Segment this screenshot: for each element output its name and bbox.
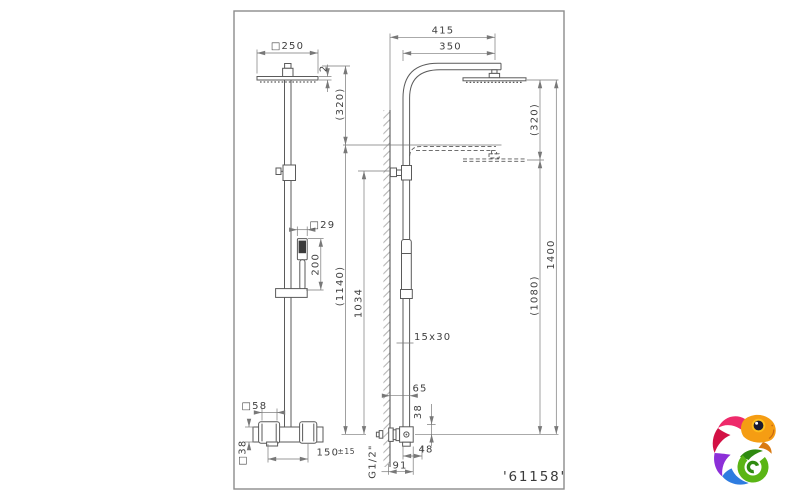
dim-handshower-width: □29	[310, 220, 336, 231]
page: □250 2 (320) □29 200 (1140) 1034	[0, 0, 800, 500]
dim-arm-reach-total: 415	[432, 26, 455, 37]
dim-head-height-adjust: (320)	[530, 103, 541, 136]
dim-overall-height: 1400	[546, 239, 557, 269]
dim-head-width: □250	[271, 41, 304, 52]
wall-hatch	[383, 110, 390, 467]
dim-riser-height-max: (1140)	[335, 266, 346, 306]
drawing-frame	[234, 11, 564, 489]
dim-total-depth: 91	[393, 461, 408, 472]
label-connection-thread: G1/2"	[368, 444, 379, 478]
dim-valve-body: □38	[238, 440, 249, 466]
logo-eye	[754, 421, 764, 431]
logo-tail-spiral-inner	[748, 462, 759, 473]
chameleon-logo	[713, 415, 776, 485]
dim-front-height-adjust: (320)	[335, 88, 346, 121]
logo-crest	[718, 416, 745, 429]
technical-drawing: □250 2 (320) □29 200 (1140) 1034	[0, 0, 800, 500]
logo-eye-highlight	[755, 422, 758, 425]
part-number: '61158'	[503, 469, 566, 485]
dim-outlet-drop: 38	[413, 404, 424, 419]
dim-handshower-length: 200	[310, 253, 321, 276]
logo-nostril	[771, 425, 773, 427]
label-riser-profile: 15x30	[414, 332, 451, 343]
logo-leg	[759, 442, 772, 454]
dim-riser-height: 1034	[354, 288, 365, 318]
dim-wall-clearance: 65	[413, 384, 428, 395]
dim-arm-reach: 350	[439, 42, 462, 53]
dim-valve-escutcheon: □58	[242, 401, 268, 412]
dim-handle-spacing-tolerance: ±15	[338, 447, 356, 456]
logo-body	[713, 428, 731, 453]
dim-handle-spacing: 150	[317, 448, 340, 459]
dim-handshower-drop: (1080)	[529, 275, 540, 315]
dim-valve-depth: 48	[419, 445, 434, 456]
